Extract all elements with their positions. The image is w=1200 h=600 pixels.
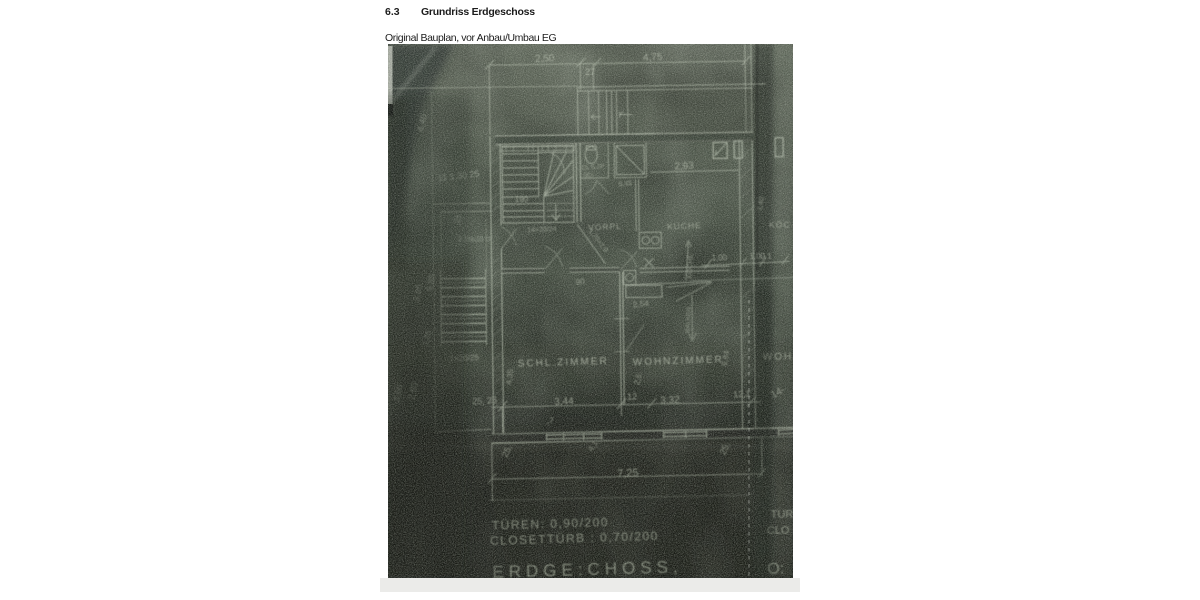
svg-text:Original Bauplan, vor Anbau/Um: Original Bauplan, vor Anbau/Umbau EG [385,32,556,44]
svg-text:Grundriss Erdgeschoss: Grundriss Erdgeschoss [421,6,535,18]
svg-text:6.3: 6.3 [385,6,400,18]
